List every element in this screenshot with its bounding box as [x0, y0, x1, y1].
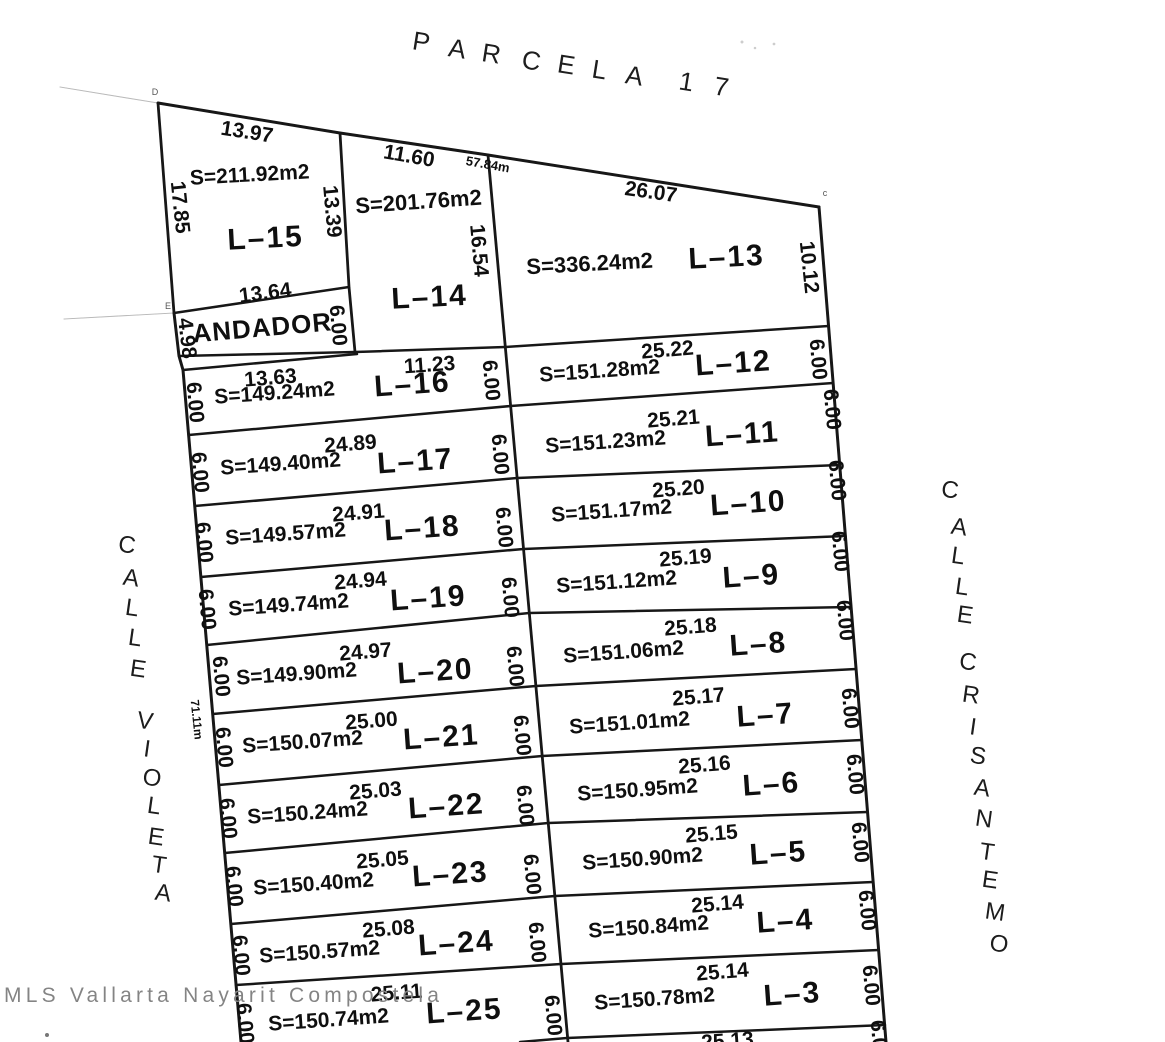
svg-text:S=150.24m2: S=150.24m2	[246, 797, 368, 828]
svg-text:10.12: 10.12	[795, 240, 823, 295]
svg-text:71.11m: 71.11m	[188, 699, 206, 740]
svg-text:A: A	[121, 564, 141, 593]
svg-text:L–20: L–20	[396, 652, 475, 690]
svg-text:L–7: L–7	[735, 697, 795, 734]
svg-text:L–5: L–5	[748, 835, 808, 872]
svg-text:L–4: L–4	[755, 903, 815, 940]
svg-text:S=149.24m2: S=149.24m2	[213, 377, 335, 408]
svg-text:L: L	[146, 792, 163, 821]
svg-text:S=150.84m2: S=150.84m2	[587, 911, 709, 942]
svg-text:6.00: 6.00	[502, 645, 528, 688]
svg-text:6.00: 6.00	[524, 921, 550, 964]
svg-text:S=149.57m2: S=149.57m2	[224, 518, 346, 549]
svg-text:6.00: 6.00	[519, 853, 545, 896]
svg-text:6.00: 6.00	[232, 1002, 258, 1042]
svg-text:I: I	[142, 735, 152, 763]
svg-text:6.00: 6.00	[491, 506, 517, 549]
svg-text:C: C	[958, 648, 979, 677]
svg-text:M: M	[983, 897, 1007, 927]
svg-text:L–13: L–13	[687, 239, 765, 276]
svg-text:L–22: L–22	[407, 787, 486, 825]
svg-text:E: E	[128, 655, 148, 684]
svg-text:c: c	[823, 188, 828, 198]
svg-text:6.00: 6.00	[478, 359, 504, 402]
svg-text:S=211.92m2: S=211.92m2	[189, 160, 310, 189]
svg-text:T: T	[978, 838, 997, 867]
svg-text:S=151.17m2: S=151.17m2	[550, 495, 672, 526]
svg-text:6.00: 6.00	[819, 388, 845, 431]
svg-text:S=151.23m2: S=151.23m2	[544, 426, 666, 457]
svg-text:6.00: 6.00	[854, 889, 880, 932]
svg-text:L: L	[950, 542, 967, 571]
svg-text:S=149.74m2: S=149.74m2	[227, 589, 349, 620]
svg-text:T: T	[150, 851, 169, 880]
svg-text:7: 7	[712, 71, 731, 103]
svg-text:6.00: 6.00	[842, 753, 868, 796]
svg-text:S=151.12m2: S=151.12m2	[555, 566, 677, 597]
svg-text:L–8: L–8	[728, 626, 788, 663]
svg-text:A: A	[972, 774, 992, 803]
svg-text:6.00: 6.00	[512, 784, 538, 827]
svg-text:6.00: 6.00	[837, 687, 863, 730]
svg-text:L–15: L–15	[226, 220, 304, 257]
svg-text:L–16: L–16	[373, 365, 452, 403]
svg-text:E: E	[555, 48, 577, 80]
svg-text:L: L	[590, 54, 609, 86]
svg-text:6.00: 6.00	[191, 521, 217, 564]
svg-text:25.14: 25.14	[695, 959, 750, 986]
svg-text:C: C	[940, 476, 961, 505]
svg-text:E: E	[146, 823, 166, 852]
svg-text:N: N	[974, 805, 995, 834]
svg-text:S=150.74m2: S=150.74m2	[267, 1004, 389, 1035]
svg-text:6.00: 6.00	[487, 433, 513, 476]
svg-text:E: E	[165, 301, 171, 311]
svg-text:S=150.40m2: S=150.40m2	[252, 868, 374, 899]
svg-text:V: V	[135, 707, 155, 736]
svg-text:25.13: 25.13	[701, 1028, 755, 1042]
svg-text:S=150.90m2: S=150.90m2	[581, 843, 703, 874]
svg-text:6.00: 6.00	[228, 934, 254, 977]
svg-text:C: C	[117, 531, 138, 560]
svg-text:L: L	[124, 594, 141, 623]
svg-text:6.00: 6.00	[208, 655, 234, 698]
svg-text:A: A	[623, 59, 645, 91]
svg-text:S=149.40m2: S=149.40m2	[219, 448, 341, 479]
svg-text:O: O	[988, 930, 1010, 959]
svg-text:O: O	[141, 764, 163, 793]
svg-text:S=150.95m2: S=150.95m2	[576, 774, 698, 805]
svg-text:17.85: 17.85	[166, 180, 194, 235]
svg-text:E: E	[980, 866, 1000, 895]
svg-text:6.00: 6.00	[221, 865, 247, 908]
svg-text:6.00: 6.00	[215, 797, 241, 840]
svg-text:S=201.76m2: S=201.76m2	[354, 185, 482, 219]
svg-text:16.54: 16.54	[465, 223, 493, 278]
svg-text:S=151.28m2: S=151.28m2	[538, 355, 660, 386]
svg-text:R: R	[480, 37, 503, 70]
svg-text:S=151.06m2: S=151.06m2	[562, 636, 684, 667]
svg-text:A: A	[153, 879, 173, 908]
svg-text:6.00: 6.00	[824, 459, 850, 502]
svg-text:L–10: L–10	[709, 484, 788, 522]
svg-text:6.00: 6.00	[194, 588, 220, 631]
svg-text:S=151.01m2: S=151.01m2	[568, 707, 690, 738]
svg-text:L–23: L–23	[411, 855, 490, 893]
svg-text:26.07: 26.07	[623, 177, 678, 207]
svg-text:L–18: L–18	[383, 509, 462, 547]
svg-text:6.00: 6.00	[182, 381, 208, 424]
svg-text:L–3: L–3	[762, 976, 822, 1013]
svg-text:4.98: 4.98	[173, 317, 201, 361]
svg-text:MLS Vallarta Nayarit Compostel: MLS Vallarta Nayarit Compostela	[4, 984, 443, 1007]
svg-text:R: R	[961, 681, 982, 710]
svg-text:6.00: 6.00	[866, 1019, 892, 1042]
svg-text:13.64: 13.64	[238, 278, 293, 307]
svg-text:L–11: L–11	[704, 415, 781, 453]
svg-text:1: 1	[677, 66, 696, 98]
svg-text:6.00: 6.00	[325, 304, 351, 347]
svg-text:S=150.78m2: S=150.78m2	[593, 983, 715, 1014]
svg-text:6.00: 6.00	[509, 714, 535, 757]
svg-text:I: I	[968, 713, 978, 741]
svg-text:25.17: 25.17	[671, 684, 725, 711]
svg-text:L: L	[954, 573, 971, 602]
svg-text:A: A	[446, 32, 468, 64]
svg-text:L: L	[127, 624, 144, 653]
svg-text:6.00: 6.00	[832, 599, 858, 642]
svg-text:L–19: L–19	[389, 579, 468, 617]
svg-text:S=150.57m2: S=150.57m2	[258, 936, 380, 967]
svg-text:L–21: L–21	[402, 718, 481, 756]
svg-text:6.00: 6.00	[858, 964, 884, 1007]
svg-text:A: A	[949, 513, 969, 542]
svg-text:6.00: 6.00	[827, 530, 853, 573]
svg-text:L–24: L–24	[417, 924, 496, 962]
svg-text:13.39: 13.39	[318, 184, 345, 238]
svg-text:6.00: 6.00	[540, 994, 566, 1037]
svg-text:L–9: L–9	[721, 558, 781, 595]
svg-text:L–14: L–14	[390, 279, 468, 316]
svg-text:6.00: 6.00	[805, 338, 831, 381]
svg-text:ANDADOR: ANDADOR	[191, 306, 333, 348]
svg-text:6.00: 6.00	[187, 451, 213, 494]
svg-text:L–17: L–17	[376, 442, 455, 480]
svg-text:S: S	[968, 742, 988, 771]
svg-text:S=149.90m2: S=149.90m2	[235, 658, 357, 689]
svg-text:6.00: 6.00	[847, 821, 873, 864]
svg-text:L–6: L–6	[741, 766, 801, 803]
svg-text:E: E	[955, 601, 975, 630]
svg-text:6.00: 6.00	[497, 576, 523, 619]
svg-text:S=336.24m2: S=336.24m2	[526, 248, 654, 280]
svg-text:S=150.07m2: S=150.07m2	[241, 726, 363, 757]
svg-text:L–12: L–12	[694, 344, 773, 382]
svg-text:C: C	[520, 44, 543, 77]
svg-text:P: P	[410, 25, 432, 57]
svg-text:D: D	[152, 87, 159, 97]
svg-text:6.00: 6.00	[211, 726, 237, 769]
